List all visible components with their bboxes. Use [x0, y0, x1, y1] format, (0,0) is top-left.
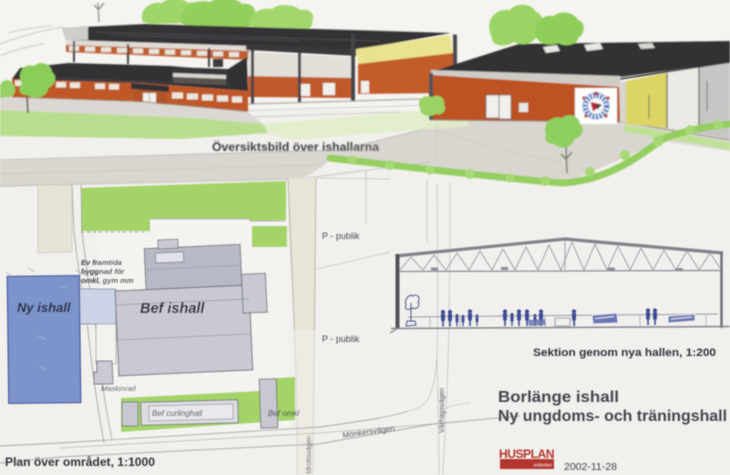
svg-text:Vårhagsvägen: Vårhagsvägen [438, 388, 446, 433]
svg-text:omkl, gym mm: omkl, gym mm [81, 276, 134, 285]
svg-text:P - publik: P - publik [322, 334, 360, 344]
svg-text:Bef curlinghall: Bef curlinghall [152, 409, 202, 418]
svg-text:Idrottsvägen: Idrottsvägen [306, 435, 313, 474]
svg-text:2002-11-28: 2002-11-28 [564, 461, 617, 473]
svg-text:Ny ishall: Ny ishall [17, 300, 71, 315]
svg-text:Översiktsbild över ishallarna: Översiktsbild över ishallarna [212, 139, 379, 154]
svg-text:Sektion genom nya hallen, 1:20: Sektion genom nya hallen, 1:200 [533, 347, 716, 359]
svg-text:Maskinrad: Maskinrad [101, 384, 136, 393]
svg-text:Borlänge ishall: Borlänge ishall [498, 389, 619, 406]
svg-text:Bef ishall: Bef ishall [140, 301, 205, 317]
svg-text:Ny ungdoms- och träningshall: Ny ungdoms- och träningshall [498, 408, 727, 425]
svg-text:arkitekter: arkitekter [533, 463, 552, 468]
svg-text:P - publik: P - publik [322, 231, 360, 241]
svg-text:byggnad för: byggnad för [81, 267, 125, 276]
svg-text:Ev framtida: Ev framtida [81, 258, 122, 267]
svg-text:Plan över området, 1:1000: Plan över området, 1:1000 [5, 457, 155, 469]
svg-text:Bef omkl: Bef omkl [268, 409, 299, 418]
